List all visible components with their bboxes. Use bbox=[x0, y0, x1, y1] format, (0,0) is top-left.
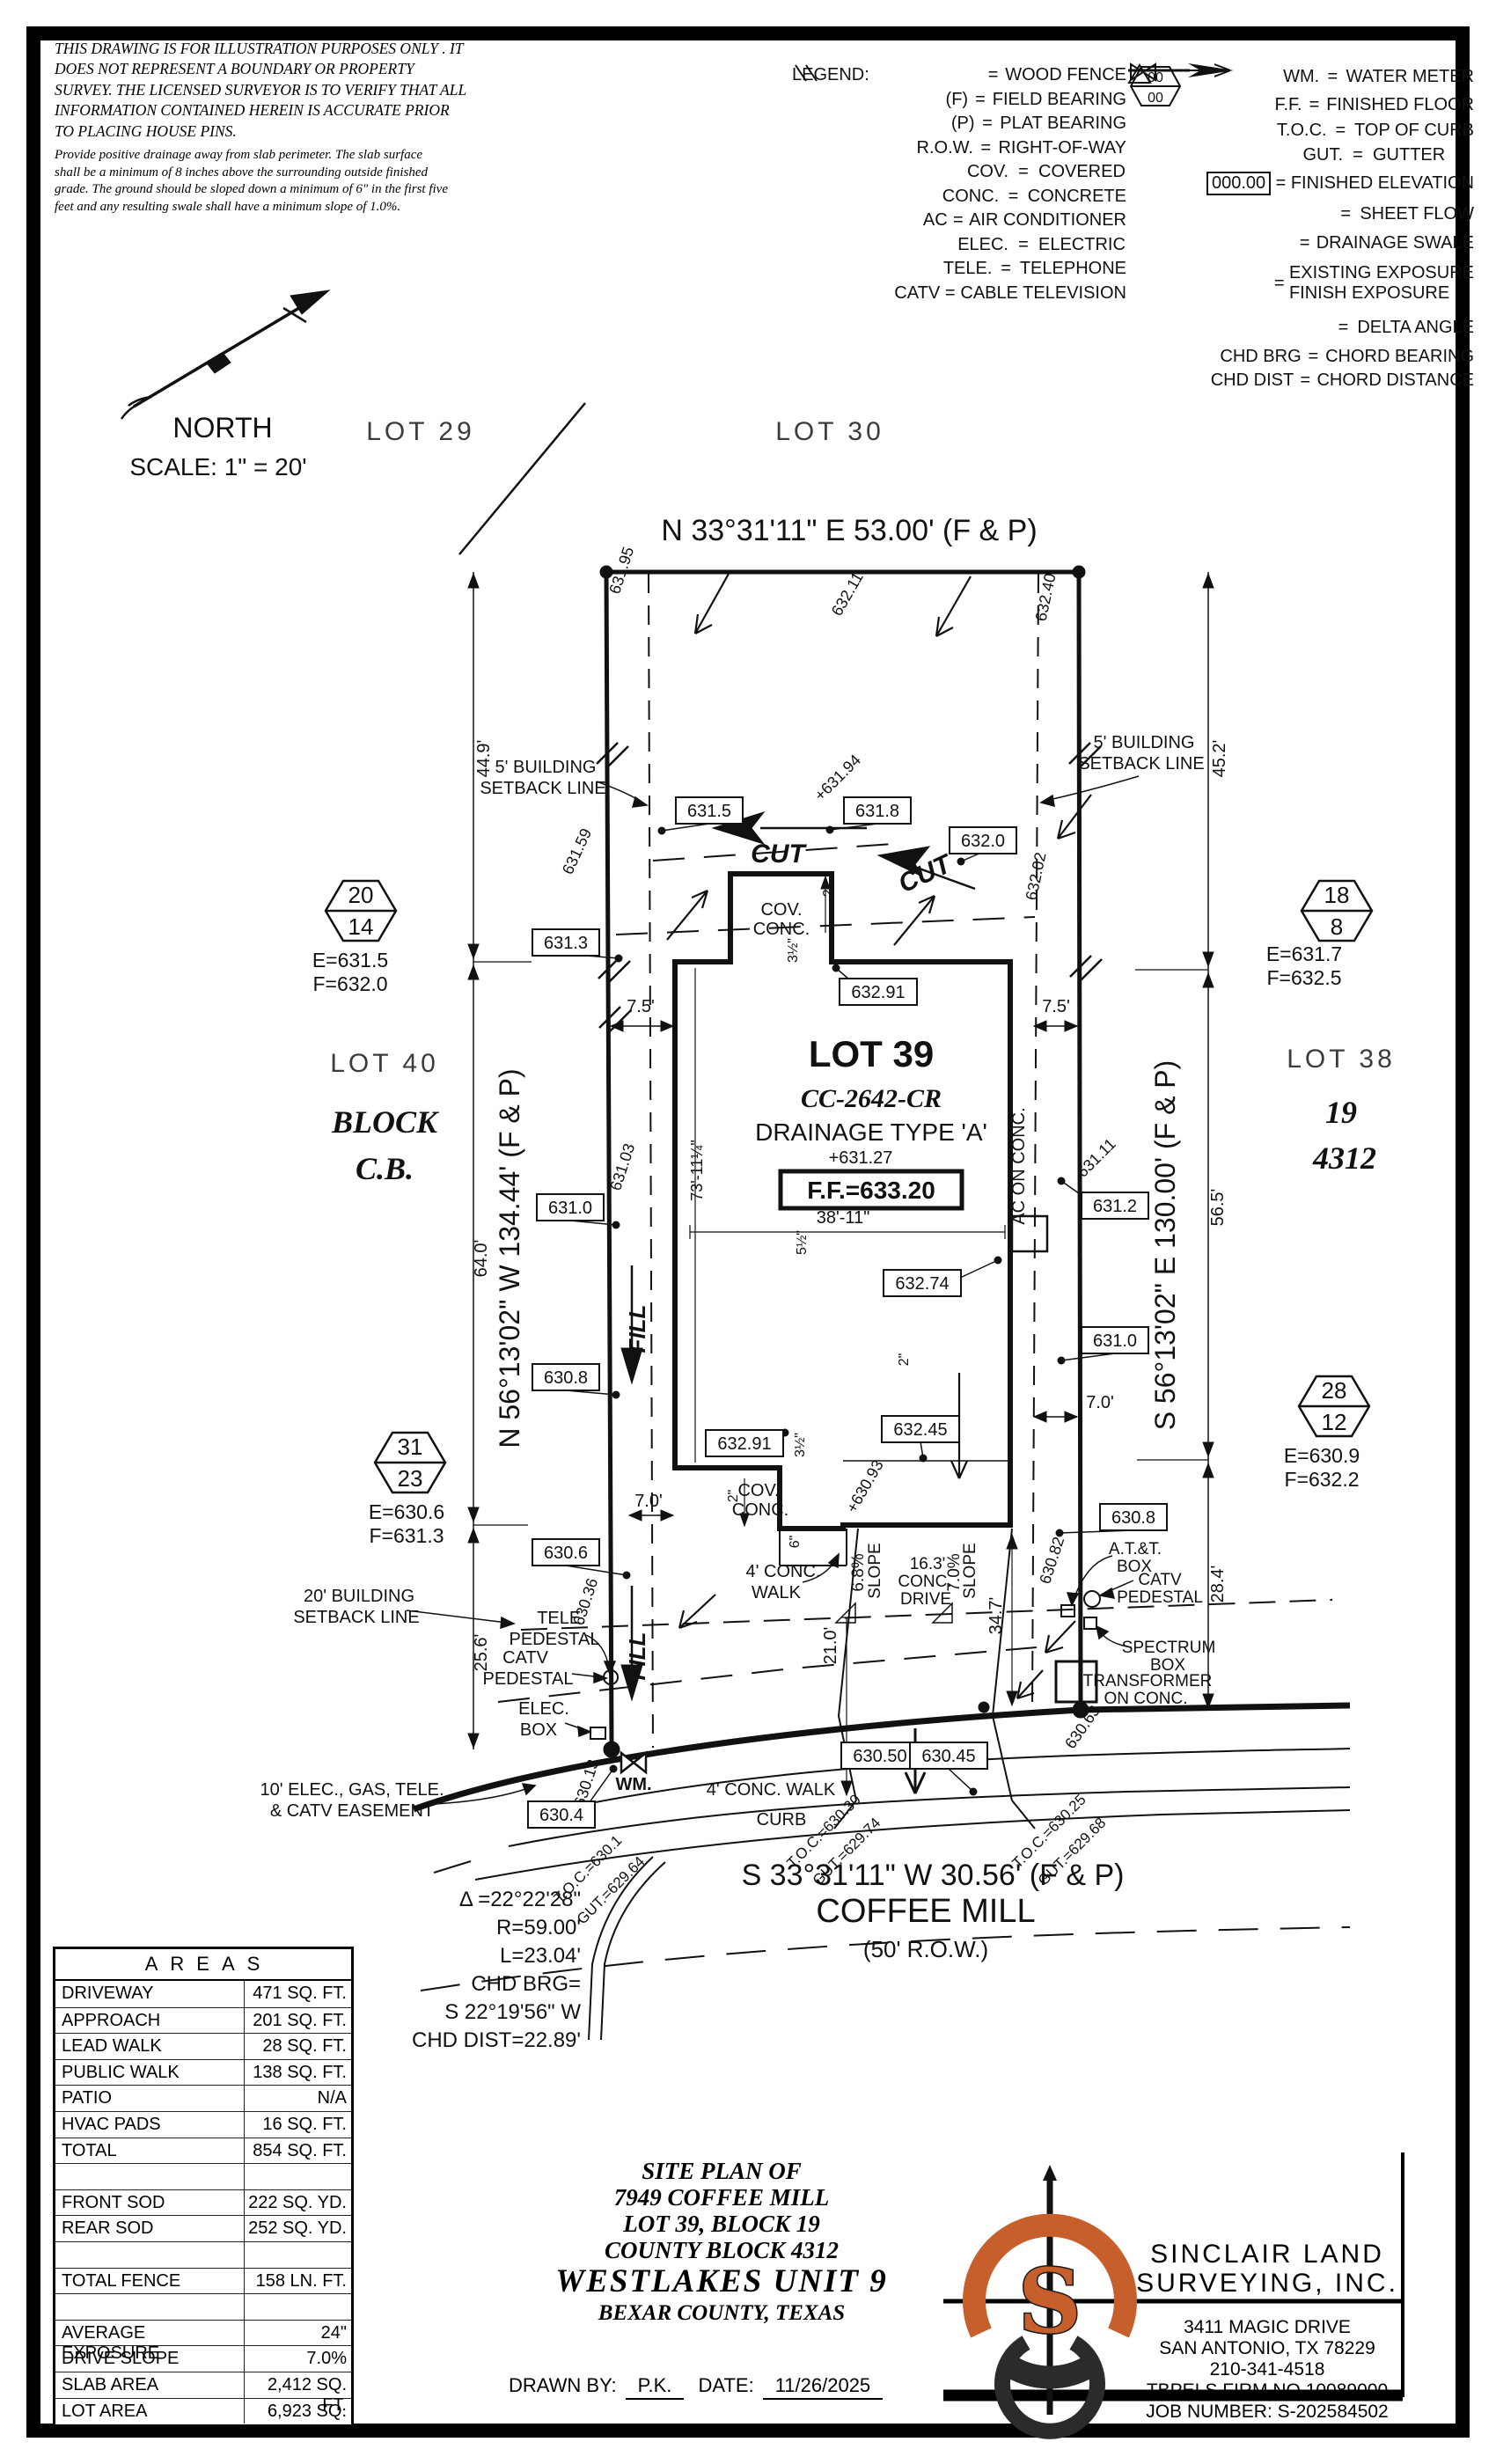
legend-row: =DRAINAGE SWALE bbox=[1126, 229, 1474, 257]
existing-elevation-label: E=630.6 bbox=[369, 1500, 444, 1523]
area-value: 2,412 SQ. FT. bbox=[244, 2372, 351, 2398]
legend-desc: FIELD BEARING bbox=[993, 90, 1126, 109]
finished-elevation-value: 632.74 bbox=[895, 1274, 949, 1294]
date-label: DATE: bbox=[699, 2374, 754, 2396]
disclaimer-note: THIS DRAWING IS FOR ILLUSTRATION PURPOSE… bbox=[55, 39, 470, 216]
leader-line bbox=[662, 824, 709, 831]
plan-label: CURB bbox=[757, 1810, 807, 1830]
legend-row: (P)=PLAT BEARING bbox=[792, 112, 1126, 136]
legend-desc: CONCRETE bbox=[1028, 187, 1126, 206]
leader-dot bbox=[610, 1765, 618, 1773]
plan-label: WALK bbox=[752, 1583, 802, 1602]
area-label: DRIVEWAY bbox=[55, 1981, 244, 2007]
area-label bbox=[55, 2242, 244, 2268]
legend-desc: CABLE TELEVISION bbox=[960, 283, 1126, 303]
areas-row: REAR SOD252 SQ. YD. bbox=[55, 2215, 351, 2241]
area-value: 16 SQ. FT. bbox=[244, 2112, 351, 2138]
plan-label: 632.02 bbox=[1023, 851, 1050, 902]
plan-label: R=59.00' bbox=[496, 1916, 581, 1940]
plan-label: CONC. bbox=[753, 920, 810, 939]
survey-sheet: S LOT 29LOT 30N 33°31'11" E 53.00' (F & … bbox=[0, 0, 1496, 2464]
area-label: REAR SOD bbox=[55, 2216, 244, 2241]
plan-label: 16.3' bbox=[910, 1555, 946, 1573]
finished-elevation-value: 630.8 bbox=[544, 1368, 588, 1388]
legend-desc: AIR CONDITIONER bbox=[969, 210, 1126, 230]
legend-sym: TELE. bbox=[943, 259, 993, 279]
area-value bbox=[244, 2294, 351, 2320]
legend-sym: (F) bbox=[946, 90, 969, 110]
area-value: 471 SQ. FT. bbox=[244, 1981, 351, 2007]
finished-elevation-value: 630.50 bbox=[853, 1747, 906, 1766]
legend-symbol: GUT. bbox=[1126, 145, 1343, 165]
plan-label: AC ON CONC. bbox=[1009, 1107, 1029, 1224]
title-block-line: SITE PLAN OF bbox=[528, 2158, 915, 2184]
title-block: SITE PLAN OF7949 COFFEE MILLLOT 39, BLOC… bbox=[528, 2158, 915, 2327]
plan-label: SCALE: 1" = 20' bbox=[129, 453, 306, 480]
plan-label: 34.7' bbox=[986, 1597, 1006, 1635]
legend-row: =SHEET FLOW bbox=[1126, 199, 1474, 229]
wood-fence-icon bbox=[792, 63, 822, 83]
area-value: 28 SQ. FT. bbox=[244, 2034, 351, 2059]
legend-desc: COVERED bbox=[1038, 162, 1126, 181]
plan-label: 44.9' bbox=[474, 740, 494, 778]
att-box-icon bbox=[1061, 1605, 1074, 1617]
leader-line bbox=[566, 1566, 627, 1575]
title-block-line: COUNTY BLOCK 4312 bbox=[528, 2237, 915, 2263]
area-label: LEAD WALK bbox=[55, 2034, 244, 2059]
legend-sym: ELEC. bbox=[957, 235, 1008, 255]
finished-elevation-value: 631.8 bbox=[855, 802, 899, 821]
finished-elevation-icon: 000.00 bbox=[1206, 172, 1271, 195]
leader-dot bbox=[612, 1391, 620, 1399]
areas-row: HVAC PADS16 SQ. FT. bbox=[55, 2111, 351, 2138]
area-label bbox=[55, 2164, 244, 2189]
plan-label: CC-2642-CR bbox=[801, 1084, 942, 1113]
area-label: PATIO bbox=[55, 2086, 244, 2111]
legend-row: GUT.=GUTTER bbox=[1126, 143, 1474, 167]
areas-row: TOTAL FENCE158 LN. FT. bbox=[55, 2268, 351, 2294]
plan-label: 45.2' bbox=[1210, 740, 1229, 778]
legend-sym: CHD BRG bbox=[1220, 347, 1301, 367]
plan-label: LOT 39 bbox=[809, 1033, 934, 1074]
elec-box-icon bbox=[590, 1727, 605, 1739]
plan-label: & CATV EASEMENT bbox=[270, 1801, 434, 1821]
disclaimer-text-1: THIS DRAWING IS FOR ILLUSTRATION PURPOSE… bbox=[55, 39, 470, 142]
leader-dot bbox=[1058, 1357, 1066, 1365]
finished-elevation-value: 631.0 bbox=[1093, 1331, 1137, 1351]
legend-desc: TELEPHONE bbox=[1020, 259, 1126, 278]
existing-elevation-label: E=631.7 bbox=[1266, 942, 1342, 965]
areas-table: AREAS DRIVEWAY471 SQ. FT.APPROACH201 SQ.… bbox=[53, 1947, 354, 2427]
legend-row: (F)=FIELD BEARING bbox=[792, 88, 1126, 113]
areas-row: LEAD WALK28 SQ. FT. bbox=[55, 2033, 351, 2059]
plan-label: 2" bbox=[726, 1490, 741, 1503]
legend-desc: RIGHT-OF-WAY bbox=[998, 138, 1126, 158]
plan-label: LOT 38 bbox=[1287, 1045, 1396, 1074]
leader-dot bbox=[1056, 1529, 1064, 1537]
legend-symbol: CONC. bbox=[866, 187, 999, 207]
firm-name-line2: SURVEYING, INC. bbox=[1075, 2269, 1459, 2298]
legend-row: LEGEND:=WOOD FENCE bbox=[792, 63, 1126, 88]
areas-row: SLAB AREA2,412 SQ. FT. bbox=[55, 2372, 351, 2398]
finish-elevation-label: F=632.2 bbox=[1284, 1468, 1359, 1491]
leader-dot bbox=[920, 1455, 928, 1463]
area-value: 201 SQ. FT. bbox=[244, 2008, 351, 2034]
legend-desc: FINISHED ELEVATION bbox=[1291, 173, 1474, 193]
finished-elevation-value: 632.0 bbox=[961, 832, 1005, 851]
drawn-by-label: DRAWN BY: bbox=[509, 2374, 617, 2396]
leader-line bbox=[949, 1769, 973, 1792]
legend-desc: CHORD DISTANCE bbox=[1316, 370, 1474, 390]
area-value: 158 LN. FT. bbox=[244, 2269, 351, 2294]
existing-exposure-value: 31 bbox=[398, 1434, 423, 1460]
leader-dot bbox=[832, 964, 840, 972]
plan-label: LOT 40 bbox=[330, 1049, 439, 1078]
leader-dot bbox=[1058, 1177, 1066, 1185]
plan-label: TRANSFORMER bbox=[1083, 1672, 1213, 1690]
legend-desc: DRAINAGE SWALE bbox=[1316, 233, 1474, 253]
legend-desc: TOP OF CURB bbox=[1354, 121, 1474, 140]
areas-row: PATION/A bbox=[55, 2085, 351, 2111]
legend-row: COV.=COVERED bbox=[792, 160, 1126, 185]
plan-label: +630.93 bbox=[843, 1457, 887, 1516]
area-label: TOTAL bbox=[55, 2138, 244, 2164]
areas-row bbox=[55, 2163, 351, 2189]
area-value: 252 SQ. YD. bbox=[244, 2216, 351, 2241]
firm-detail-line: 210-341-4518 bbox=[1075, 2359, 1459, 2380]
legend-row: 000.00=FINISHED ELEVATION bbox=[1126, 167, 1474, 199]
finished-elevation-value: 631.5 bbox=[687, 802, 731, 821]
disclaimer-text-2: Provide positive drainage away from slab… bbox=[55, 147, 449, 216]
legend-row: R.O.W.=RIGHT-OF-WAY bbox=[792, 136, 1126, 161]
legend-symbol: R.O.W. bbox=[857, 138, 973, 158]
plan-label: +631.27 bbox=[829, 1148, 893, 1168]
plan-label: 7.0' bbox=[634, 1492, 663, 1511]
legend-sym: GUT. bbox=[1302, 145, 1343, 165]
area-value: 24" bbox=[244, 2321, 351, 2346]
legend-desc: DELTA ANGLE bbox=[1357, 318, 1474, 337]
firm-detail-line: TBPELS FIRM NO.10089000 bbox=[1075, 2380, 1459, 2402]
areas-row: PUBLIC WALK138 SQ. FT. bbox=[55, 2059, 351, 2086]
plan-label: CATV bbox=[502, 1648, 549, 1668]
legend-row: CHD BRG=CHORD BEARING bbox=[1126, 345, 1474, 369]
areas-row: FRONT SOD222 SQ. YD. bbox=[55, 2189, 351, 2216]
plan-label: 4312 bbox=[1312, 1140, 1376, 1176]
plan-label: SETBACK LINE bbox=[480, 779, 605, 798]
finish-exposure-value: 14 bbox=[348, 913, 374, 940]
legend-desc: ELECTRIC bbox=[1038, 235, 1126, 254]
legend-row: =DELTA ANGLE bbox=[1126, 310, 1474, 345]
legend-desc: FINISHED FLOOR bbox=[1326, 95, 1474, 114]
areas-row: TOTAL854 SQ. FT. bbox=[55, 2138, 351, 2164]
area-label: HVAC PADS bbox=[55, 2112, 244, 2138]
finished-elevation-value: 632.91 bbox=[851, 983, 905, 1002]
plan-label: 6" bbox=[788, 1536, 803, 1549]
area-value: 6,923 SQ. FT. bbox=[244, 2399, 351, 2424]
finished-elevation-value: 630.45 bbox=[921, 1747, 975, 1766]
finished-elevation-value: 632.91 bbox=[717, 1434, 771, 1454]
finish-elevation-label: F=632.0 bbox=[312, 972, 387, 995]
title-block-line: LOT 39, BLOCK 19 bbox=[528, 2211, 915, 2237]
existing-exposure-value: 28 bbox=[1322, 1377, 1347, 1404]
legend-sym: CATV bbox=[894, 283, 940, 304]
finish-elevation-label: F=632.5 bbox=[1266, 966, 1341, 989]
legend-row: TELE.=TELEPHONE bbox=[792, 257, 1126, 282]
area-value bbox=[244, 2242, 351, 2268]
plan-label: 28.4' bbox=[1208, 1566, 1228, 1603]
existing-elevation-label: E=630.9 bbox=[1284, 1444, 1360, 1467]
area-label: APPROACH bbox=[55, 2008, 244, 2034]
plan-label: FILL bbox=[624, 1632, 650, 1681]
date-value: 11/26/2025 bbox=[763, 2374, 883, 2400]
legend-desc: PLAT BEARING bbox=[1000, 114, 1126, 133]
legend-sym: T.O.C. bbox=[1277, 121, 1327, 141]
svg-text:00: 00 bbox=[1148, 91, 1163, 106]
plan-label: SPECTRUM bbox=[1122, 1639, 1216, 1657]
area-label: DRIVE SLOPE bbox=[55, 2346, 244, 2372]
plan-label: C.B. bbox=[356, 1151, 414, 1186]
plan-label: SLOPE bbox=[961, 1543, 979, 1598]
plan-label: L=23.04' bbox=[500, 1944, 581, 1968]
plan-label: 20' BUILDING bbox=[304, 1587, 414, 1606]
leader-dot bbox=[615, 955, 623, 963]
legend-desc: EXISTING EXPOSUREFINISH EXPOSURE bbox=[1289, 263, 1474, 303]
finished-elevation-value: 631.2 bbox=[1093, 1197, 1137, 1216]
finished-elevation-value: 630.8 bbox=[1111, 1508, 1155, 1528]
legend-sym: F.F. bbox=[1274, 95, 1302, 115]
legend-sym: CHD DIST bbox=[1211, 370, 1294, 391]
plan-label: 10' ELEC., GAS, TELE. bbox=[260, 1780, 444, 1800]
plan-label: CHD BRG= bbox=[471, 1972, 581, 1996]
firm-detail-line: JOB NUMBER: S-202584502 bbox=[1075, 2402, 1459, 2423]
legend-row: 0000=EXISTING EXPOSUREFINISH EXPOSURE bbox=[1126, 257, 1474, 310]
area-label: LOT AREA bbox=[55, 2399, 244, 2424]
plan-label: 7.5' bbox=[627, 997, 655, 1016]
legend-desc: WOOD FENCE bbox=[1005, 65, 1126, 84]
plan-label: PEDESTAL bbox=[1117, 1588, 1203, 1607]
firm-detail-line: 3411 MAGIC DRIVE bbox=[1075, 2317, 1459, 2338]
plan-label: 632.11 bbox=[828, 569, 867, 620]
plan-label: COV. bbox=[760, 900, 802, 920]
existing-elevation-label: E=631.5 bbox=[312, 949, 388, 972]
plan-label: 4' CONC. WALK bbox=[707, 1780, 836, 1800]
plan-label: COFFEE MILL bbox=[816, 1893, 1035, 1930]
firm-name-line1: SINCLAIR LAND bbox=[1075, 2240, 1459, 2269]
drawn-by-row: DRAWN BY:P.K. DATE:11/26/2025 bbox=[509, 2374, 931, 2400]
areas-row: AVERAGE EXPOSURE24" bbox=[55, 2320, 351, 2346]
firm-detail-line: SAN ANTONIO, TX 78229 bbox=[1075, 2338, 1459, 2359]
areas-row: APPROACH201 SQ. FT. bbox=[55, 2007, 351, 2034]
area-label: SLAB AREA bbox=[55, 2372, 244, 2398]
plan-label: CONC. bbox=[898, 1573, 951, 1591]
legend-desc: SHEET FLOW bbox=[1360, 204, 1474, 224]
title-block-line: BEXAR COUNTY, TEXAS bbox=[528, 2300, 915, 2327]
legend-sym: AC bbox=[923, 210, 948, 231]
leader-dot bbox=[623, 1572, 631, 1580]
plan-label: 56.5' bbox=[1208, 1189, 1228, 1227]
logo-letter: S bbox=[1018, 2249, 1082, 2353]
catv-pedestal-icon bbox=[1084, 1591, 1100, 1607]
leader-dot bbox=[826, 826, 834, 834]
legend-row: T.O.C.=TOP OF CURB bbox=[1126, 118, 1474, 143]
plan-label: N 56°13'02" W 134.44' (F & P) bbox=[494, 1068, 525, 1448]
area-value: 854 SQ. FT. bbox=[244, 2138, 351, 2164]
plan-label: 7.5' bbox=[1042, 997, 1070, 1016]
plan-label: 38'-11" bbox=[817, 1208, 870, 1228]
leader-dot bbox=[612, 1221, 620, 1229]
legend-row: CONC.=CONCRETE bbox=[792, 185, 1126, 209]
areas-row: DRIVE SLOPE7.0% bbox=[55, 2345, 351, 2372]
finished-elevation-value: F.F.=633.20 bbox=[807, 1177, 935, 1204]
legend-symbol: (P) bbox=[857, 114, 974, 134]
area-label: FRONT SOD bbox=[55, 2190, 244, 2216]
plan-label: DRAINAGE TYPE 'A' bbox=[755, 1118, 987, 1146]
plan-label: 5½" bbox=[795, 1230, 810, 1255]
plan-label: 7.0' bbox=[1086, 1393, 1114, 1412]
plan-label: PEDESTAL bbox=[483, 1669, 574, 1689]
plan-label: NORTH bbox=[172, 412, 272, 444]
finish-exposure-value: 23 bbox=[398, 1465, 423, 1492]
spectrum-box-icon bbox=[1084, 1617, 1096, 1629]
legend-sym: COV. bbox=[967, 162, 1008, 182]
plan-label: COV. bbox=[737, 1481, 779, 1500]
plan-label: CONC. bbox=[732, 1500, 788, 1520]
legend-symbol: 000.00 bbox=[1126, 172, 1271, 195]
legend-symbol: (F) bbox=[855, 90, 969, 110]
plan-label: +631.94 bbox=[811, 752, 865, 805]
legend-symbol: COV. bbox=[869, 162, 1008, 182]
plan-label: LOT 30 bbox=[775, 417, 884, 446]
plan-label: S 33°31'11" W 30.56' (F & P) bbox=[742, 1859, 1125, 1892]
plan-label: 25.6' bbox=[472, 1634, 491, 1672]
finish-exposure-value: 8 bbox=[1331, 913, 1343, 940]
legend-symbol: ELEC. bbox=[869, 235, 1008, 255]
leader-dot bbox=[658, 827, 666, 835]
legend-sym: (P) bbox=[951, 114, 975, 134]
area-label: TOTAL FENCE bbox=[55, 2269, 244, 2294]
plan-label: 3½" bbox=[793, 1433, 808, 1457]
finished-elevation-value: 630.6 bbox=[544, 1544, 588, 1563]
leader-dot bbox=[970, 1788, 978, 1796]
plan-label: N 33°31'11" E 53.00' (F & P) bbox=[661, 514, 1037, 547]
plan-label: Δ =22°22'28" bbox=[459, 1888, 581, 1911]
legend-symbol: T.O.C. bbox=[1126, 121, 1327, 141]
plan-label: TELE. bbox=[537, 1609, 586, 1628]
area-value: N/A bbox=[244, 2086, 351, 2111]
plan-label: 64.0' bbox=[472, 1240, 491, 1278]
finished-elevation-value: 631.0 bbox=[548, 1199, 592, 1218]
plan-label: FILL bbox=[624, 1305, 650, 1353]
legend-desc: WATER METER bbox=[1346, 67, 1474, 86]
areas-row: LOT AREA6,923 SQ. FT. bbox=[55, 2398, 351, 2424]
plan-label: CATV bbox=[1138, 1571, 1182, 1589]
area-label: PUBLIC WALK bbox=[55, 2060, 244, 2086]
existing-exposure-value: 20 bbox=[348, 882, 374, 908]
plan-label: CHD DIST=22.89' bbox=[412, 2028, 581, 2052]
firm-info: SINCLAIR LAND SURVEYING, INC. 3411 MAGIC… bbox=[1075, 2240, 1459, 2423]
plan-label: PEDESTAL bbox=[510, 1630, 600, 1649]
plan-label: 631.59 bbox=[559, 825, 595, 876]
plan-label: 3½" bbox=[786, 938, 801, 963]
finished-elevation-value: 631.3 bbox=[544, 934, 588, 953]
plan-label: BLOCK bbox=[331, 1104, 440, 1140]
legend-desc: GUTTER bbox=[1373, 145, 1445, 165]
legend-column-1: LEGEND:=WOOD FENCE(F)=FIELD BEARING(P)=P… bbox=[792, 63, 1126, 305]
legend-symbol: CATV bbox=[845, 283, 940, 304]
plan-label: BOX bbox=[520, 1720, 557, 1740]
finished-elevation-value: 630.4 bbox=[539, 1806, 583, 1825]
plan-label: 2" bbox=[897, 1353, 912, 1367]
legend-symbol: AC bbox=[847, 210, 947, 231]
leader-line bbox=[1061, 1353, 1115, 1360]
areas-row: DRIVEWAY471 SQ. FT. bbox=[55, 1981, 351, 2007]
legend-row: ELEC.=ELECTRIC bbox=[792, 233, 1126, 258]
plan-label: 631.03 bbox=[606, 1141, 638, 1193]
plan-label: 19 bbox=[1325, 1095, 1357, 1130]
plan-label: SETBACK LINE bbox=[1078, 754, 1204, 774]
areas-table-rows: DRIVEWAY471 SQ. FT.APPROACH201 SQ. FT.LE… bbox=[55, 1981, 351, 2424]
leader-dot bbox=[994, 1257, 1002, 1265]
plan-label: SLOPE bbox=[866, 1543, 884, 1598]
plan-label: ELEC. bbox=[518, 1699, 569, 1719]
plan-label: S 22°19'56" W bbox=[444, 2000, 581, 2024]
plan-label: 5' BUILDING bbox=[495, 758, 597, 777]
area-value: 138 SQ. FT. bbox=[244, 2060, 351, 2086]
legend-sym: R.O.W. bbox=[917, 138, 973, 158]
plan-label: 21.0' bbox=[821, 1627, 840, 1665]
title-block-line: WESTLAKES UNIT 9 bbox=[528, 2263, 915, 2300]
legend-row: CHD DIST=CHORD DISTANCE bbox=[1126, 369, 1474, 392]
plan-label: 4' CONC. bbox=[746, 1562, 821, 1581]
north-arrow bbox=[121, 290, 329, 419]
legend-symbol: TELE. bbox=[863, 259, 992, 279]
legend-sym: CONC. bbox=[942, 187, 999, 207]
legend-symbol: CHD DIST bbox=[1126, 370, 1294, 391]
areas-row bbox=[55, 2293, 351, 2320]
plan-label: A.T.&T. bbox=[1109, 1540, 1162, 1558]
area-value: 222 SQ. YD. bbox=[244, 2190, 351, 2216]
plan-label: WM. bbox=[615, 1775, 651, 1794]
plan-label: SETBACK LINE bbox=[293, 1608, 419, 1627]
legend-column-2: WM. =WATER METERF.F.=FINISHED FLOORT.O.C… bbox=[1126, 62, 1474, 392]
plan-label: 630.82 bbox=[1036, 1535, 1067, 1587]
finished-elevation-value: 632.45 bbox=[893, 1420, 947, 1440]
plan-label: ON CONC. bbox=[1104, 1690, 1188, 1708]
legend-symbol: CHD BRG bbox=[1126, 347, 1302, 367]
legend-row: AC=AIR CONDITIONER bbox=[792, 209, 1126, 233]
legend-row: CATV=CABLE TELEVISION bbox=[792, 282, 1126, 306]
plan-label: DRIVE bbox=[900, 1590, 951, 1609]
finish-elevation-label: F=631.3 bbox=[369, 1524, 444, 1547]
leader-dot bbox=[957, 858, 965, 866]
area-label bbox=[55, 2294, 244, 2320]
areas-row bbox=[55, 2241, 351, 2268]
delta-angle-icon bbox=[1126, 62, 1153, 86]
area-value: 7.0% bbox=[244, 2346, 351, 2372]
finish-exposure-value: 12 bbox=[1322, 1409, 1347, 1435]
plan-label: S 56°13'02" E 130.00' (F & P) bbox=[1149, 1060, 1181, 1431]
drawn-by-value: P.K. bbox=[626, 2374, 685, 2400]
plan-label: CUT bbox=[751, 840, 807, 869]
area-label: AVERAGE EXPOSURE bbox=[55, 2321, 244, 2346]
plan-label: 5' BUILDING bbox=[1094, 733, 1195, 752]
plan-label: 6.8% bbox=[849, 1553, 868, 1591]
areas-table-title: AREAS bbox=[55, 1949, 351, 1981]
legend-desc: CHORD BEARING bbox=[1325, 347, 1474, 366]
plan-label: 2" bbox=[821, 884, 836, 898]
firm-details: 3411 MAGIC DRIVESAN ANTONIO, TX 78229210… bbox=[1075, 2317, 1459, 2423]
title-block-line: 7949 COFFEE MILL bbox=[528, 2184, 915, 2211]
